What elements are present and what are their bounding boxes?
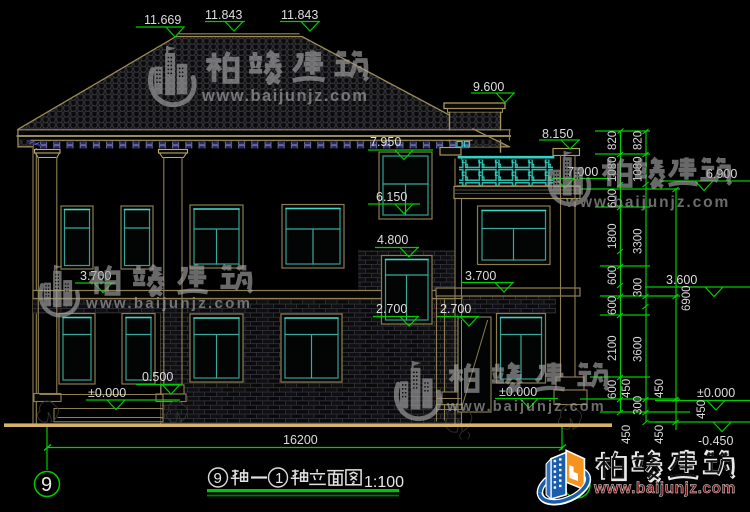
svg-text:-0.450: -0.450 (698, 434, 733, 448)
svg-text:3.600: 3.600 (666, 273, 697, 287)
svg-text:3600: 3600 (633, 336, 645, 362)
svg-text:16200: 16200 (283, 433, 318, 447)
svg-text:www.baijunjz.com: www.baijunjz.com (201, 87, 368, 105)
svg-text:300: 300 (633, 396, 645, 415)
svg-text:450: 450 (621, 379, 633, 398)
svg-text:3.700: 3.700 (465, 269, 496, 283)
svg-text:2100: 2100 (607, 335, 619, 361)
svg-text:2.700: 2.700 (376, 302, 407, 316)
svg-text:600: 600 (607, 380, 619, 399)
svg-text:±0.000: ±0.000 (697, 386, 735, 400)
svg-text:3300: 3300 (633, 228, 645, 254)
svg-text:11.669: 11.669 (144, 13, 181, 27)
svg-text:11.843: 11.843 (281, 8, 318, 22)
svg-text:820: 820 (633, 131, 645, 150)
svg-text:4.800: 4.800 (377, 233, 408, 247)
svg-text:9.600: 9.600 (473, 80, 504, 94)
svg-text:www.baijunjz.com: www.baijunjz.com (565, 194, 730, 211)
svg-text:450: 450 (654, 379, 666, 398)
svg-text:600: 600 (607, 266, 619, 285)
svg-text:820: 820 (607, 131, 619, 150)
svg-text:1: 1 (275, 470, 283, 487)
svg-text:www.baijunjz.com: www.baijunjz.com (593, 480, 736, 497)
svg-text:6.150: 6.150 (376, 190, 407, 204)
svg-text:300: 300 (633, 278, 645, 297)
svg-text:7.950: 7.950 (370, 135, 401, 149)
svg-text:11.843: 11.843 (205, 8, 242, 22)
svg-text:9: 9 (41, 474, 52, 496)
svg-text:450: 450 (696, 400, 708, 419)
svg-text:600: 600 (607, 296, 619, 315)
svg-text:8.150: 8.150 (542, 127, 573, 141)
svg-text:9: 9 (214, 470, 222, 487)
svg-text:www.baijunjz.com: www.baijunjz.com (85, 295, 252, 312)
svg-text:1800: 1800 (607, 223, 619, 249)
svg-text:450: 450 (654, 425, 666, 444)
svg-text:450: 450 (621, 425, 633, 444)
svg-text:0.500: 0.500 (142, 370, 173, 384)
svg-text:2.700: 2.700 (440, 302, 471, 316)
svg-text:1:100: 1:100 (364, 474, 404, 491)
svg-text:www.baijunjz.com: www.baijunjz.com (446, 399, 606, 415)
svg-text:±0.000: ±0.000 (88, 386, 126, 400)
svg-text:6900: 6900 (681, 285, 693, 311)
